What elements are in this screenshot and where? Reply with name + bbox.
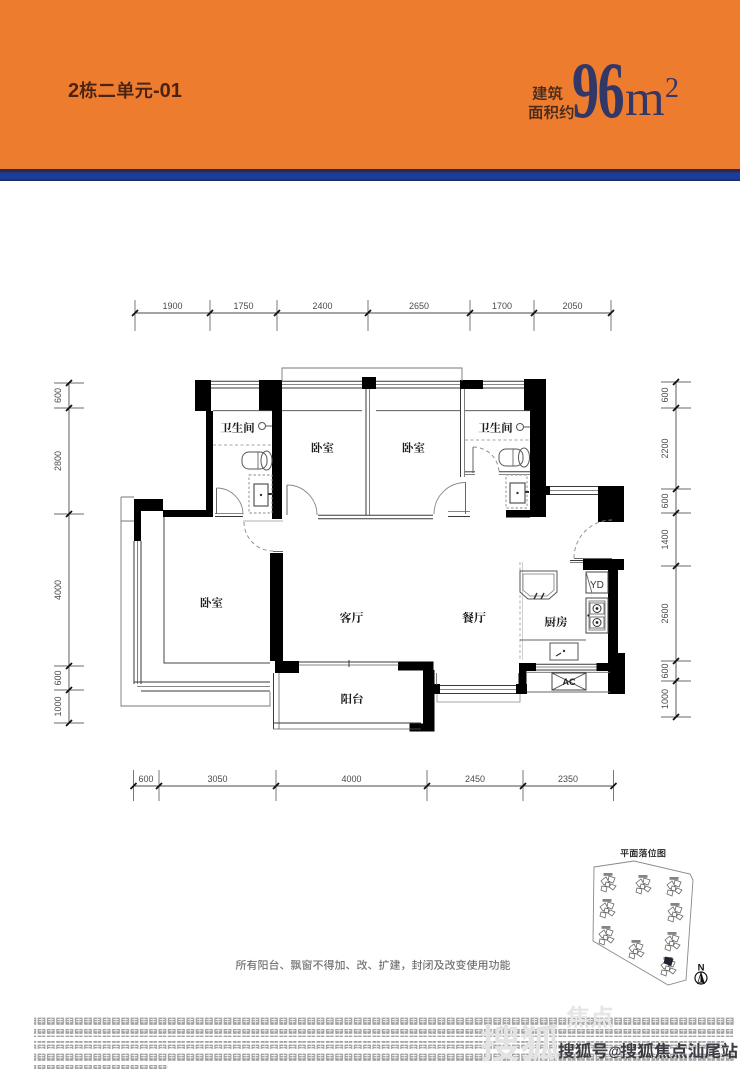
svg-text:AC: AC [563,677,576,687]
svg-text:600: 600 [53,670,63,685]
svg-text:YD: YD [590,580,604,591]
svg-text:4000: 4000 [53,580,63,600]
svg-text:1000: 1000 [660,689,670,709]
svg-text:2650: 2650 [409,301,429,311]
svg-text:600: 600 [138,774,153,784]
svg-text:600: 600 [660,387,670,402]
svg-text:2: 2 [665,73,679,104]
svg-text:-01: -01 [153,80,182,102]
svg-text:2: 2 [68,80,79,102]
svg-text:@: @ [608,1044,621,1059]
svg-text:2050: 2050 [562,301,582,311]
svg-text:2450: 2450 [465,774,485,784]
svg-text:600: 600 [53,388,63,403]
svg-text:4000: 4000 [341,774,361,784]
svg-text:1000: 1000 [53,696,63,716]
svg-text:600: 600 [660,493,670,508]
svg-text:600: 600 [660,663,670,678]
svg-text:2350: 2350 [558,774,578,784]
svg-text:2400: 2400 [312,301,332,311]
svg-text:96: 96 [572,45,624,134]
svg-text:1700: 1700 [492,301,512,311]
svg-text:m: m [625,71,665,127]
svg-text:3050: 3050 [207,774,227,784]
svg-text:2200: 2200 [660,438,670,458]
svg-text:1750: 1750 [233,301,253,311]
svg-text:1400: 1400 [660,529,670,549]
svg-text:2800: 2800 [53,451,63,471]
svg-text:1900: 1900 [162,301,182,311]
svg-text:2600: 2600 [660,603,670,623]
